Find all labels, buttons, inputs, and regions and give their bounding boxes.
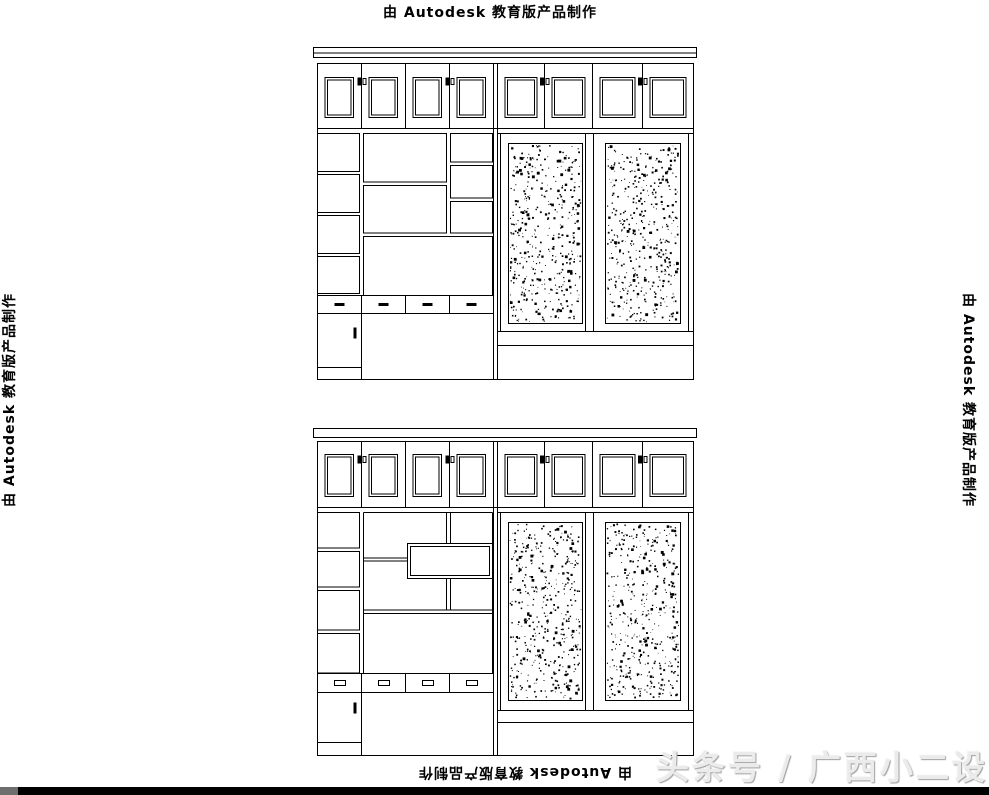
bottom-bar bbox=[0, 787, 989, 795]
drawer-handle bbox=[423, 303, 433, 306]
open-shelf-right-column bbox=[451, 134, 493, 234]
section-divider bbox=[494, 442, 498, 756]
cad-sheet: 由 Autodesk 教育版产品制作 由 Autodesk 教育版产品制作 由 … bbox=[0, 0, 989, 795]
bottom-bar-left-accent bbox=[0, 787, 18, 795]
glass-door-section bbox=[498, 134, 694, 346]
open-shelf-middle-column bbox=[364, 513, 493, 674]
autodesk-edu-watermark-right: 由 Autodesk 教育版产品制作 bbox=[959, 293, 979, 507]
glass-speckle-texture bbox=[607, 145, 679, 322]
top-rail bbox=[314, 429, 697, 438]
drawer-handle bbox=[423, 681, 434, 686]
drawer-handle bbox=[335, 303, 345, 306]
open-bay bbox=[364, 237, 493, 296]
brand-watermark: 头条号 / 广西小二设计 bbox=[656, 741, 989, 789]
autodesk-edu-watermark-bottom: 由 Autodesk 教育版产品制作 bbox=[418, 763, 632, 783]
section-divider bbox=[494, 64, 498, 380]
wardrobe-elevation-top bbox=[313, 46, 697, 381]
open-bay bbox=[364, 614, 493, 674]
wardrobe-elevation-bottom bbox=[313, 427, 697, 758]
drawer-handle bbox=[335, 681, 346, 686]
open-shelf-left-column bbox=[318, 513, 360, 674]
door-handle bbox=[354, 328, 357, 339]
base-cabinet bbox=[318, 693, 362, 756]
open-shelf-left-column bbox=[318, 134, 360, 294]
glass-speckle-texture bbox=[510, 145, 582, 322]
drawer-handle bbox=[379, 681, 390, 686]
glass-door-section bbox=[498, 513, 694, 723]
drawer-handle bbox=[467, 681, 478, 686]
autodesk-edu-watermark-left: 由 Autodesk 教育版产品制作 bbox=[0, 293, 19, 507]
autodesk-edu-watermark-top: 由 Autodesk 教育版产品制作 bbox=[383, 2, 597, 22]
upper-door-row bbox=[318, 64, 694, 129]
drawer-row bbox=[318, 296, 494, 314]
frosted-glass-panel bbox=[606, 144, 681, 324]
door-handle bbox=[354, 703, 357, 714]
upper-door-row bbox=[318, 442, 694, 508]
drawer-row bbox=[318, 674, 494, 693]
cornice bbox=[314, 48, 697, 58]
drawer-handle bbox=[467, 303, 477, 306]
drawer-handle bbox=[379, 303, 389, 306]
protruding-box-shelf bbox=[408, 544, 493, 579]
open-shelf-middle-column bbox=[364, 134, 447, 234]
door-handle bbox=[540, 78, 647, 86]
glass-speckle-texture bbox=[607, 524, 680, 699]
glass-speckle-texture bbox=[510, 524, 582, 700]
base-cabinet bbox=[318, 314, 362, 380]
